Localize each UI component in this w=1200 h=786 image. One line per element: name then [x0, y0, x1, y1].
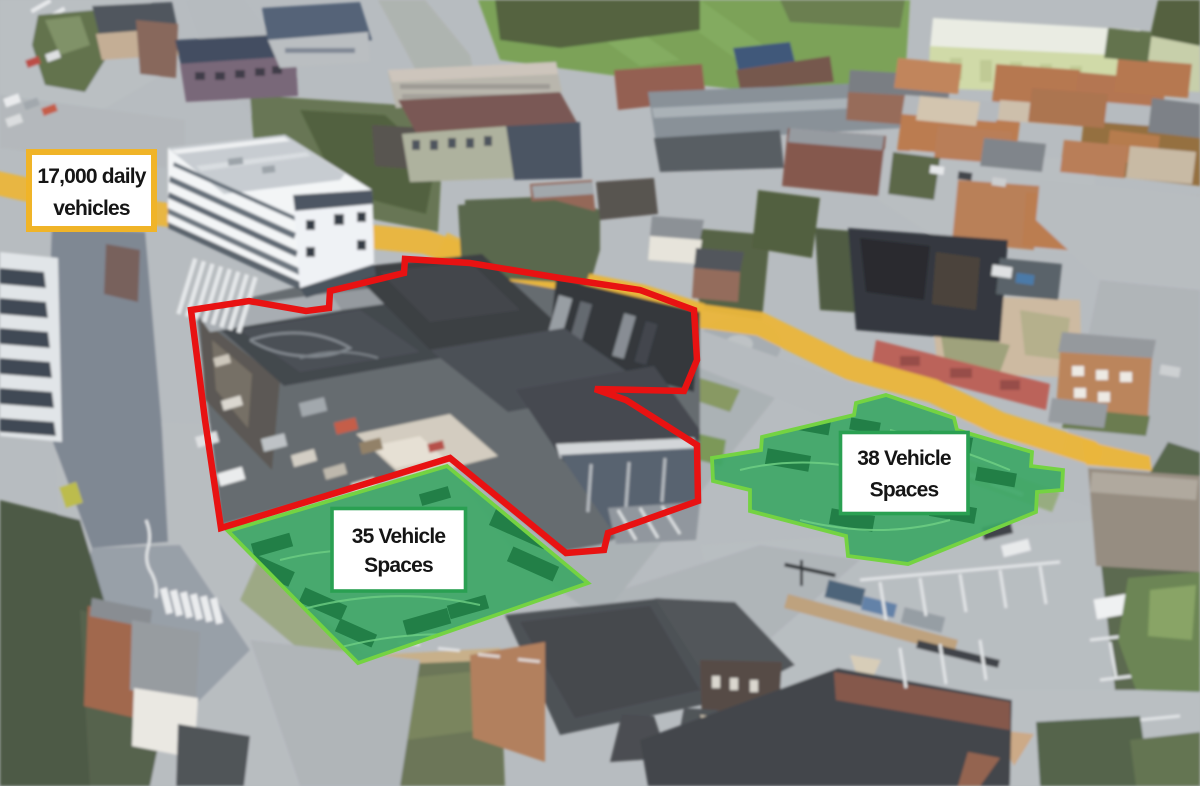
svg-text:35 Vehicle: 35 Vehicle — [352, 525, 446, 548]
svg-text:Spaces: Spaces — [870, 479, 939, 502]
svg-text:Spaces: Spaces — [364, 554, 433, 577]
svg-text:vehicles: vehicles — [53, 197, 130, 220]
svg-text:38 Vehicle: 38 Vehicle — [857, 447, 951, 470]
svg-text:17,000 daily: 17,000 daily — [37, 165, 146, 188]
